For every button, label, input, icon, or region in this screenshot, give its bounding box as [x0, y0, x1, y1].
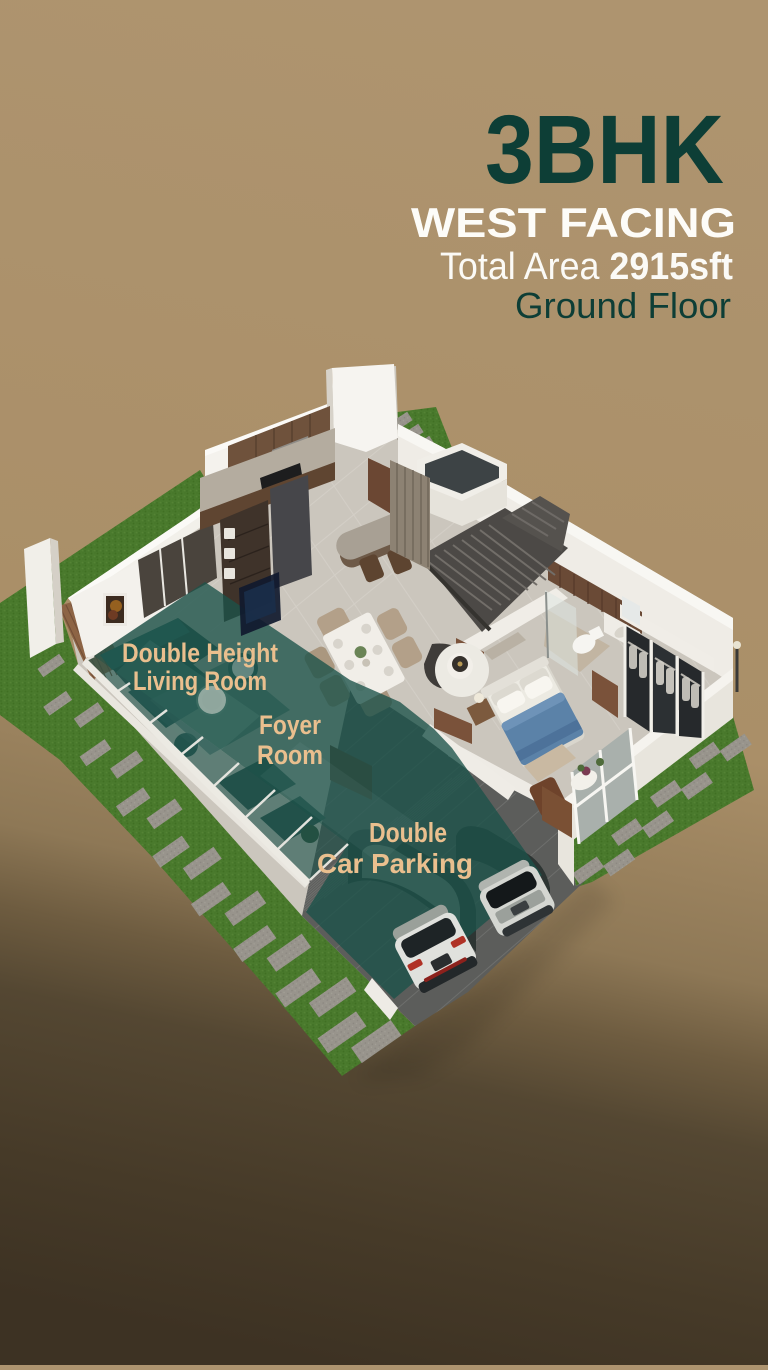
- svg-text:Double Height: Double Height: [122, 638, 278, 668]
- svg-text:Living Room: Living Room: [133, 666, 267, 696]
- svg-text:Double: Double: [369, 817, 447, 848]
- svg-text:Ground Floor: Ground Floor: [515, 285, 731, 326]
- svg-text:Car Parking: Car Parking: [317, 848, 473, 879]
- svg-text:Room: Room: [257, 740, 323, 770]
- svg-text:Total Area 2915sft: Total Area 2915sft: [440, 246, 733, 288]
- svg-text:3BHK: 3BHK: [485, 95, 724, 204]
- svg-text:WEST FACING: WEST FACING: [411, 199, 736, 246]
- svg-text:Foyer: Foyer: [259, 710, 321, 740]
